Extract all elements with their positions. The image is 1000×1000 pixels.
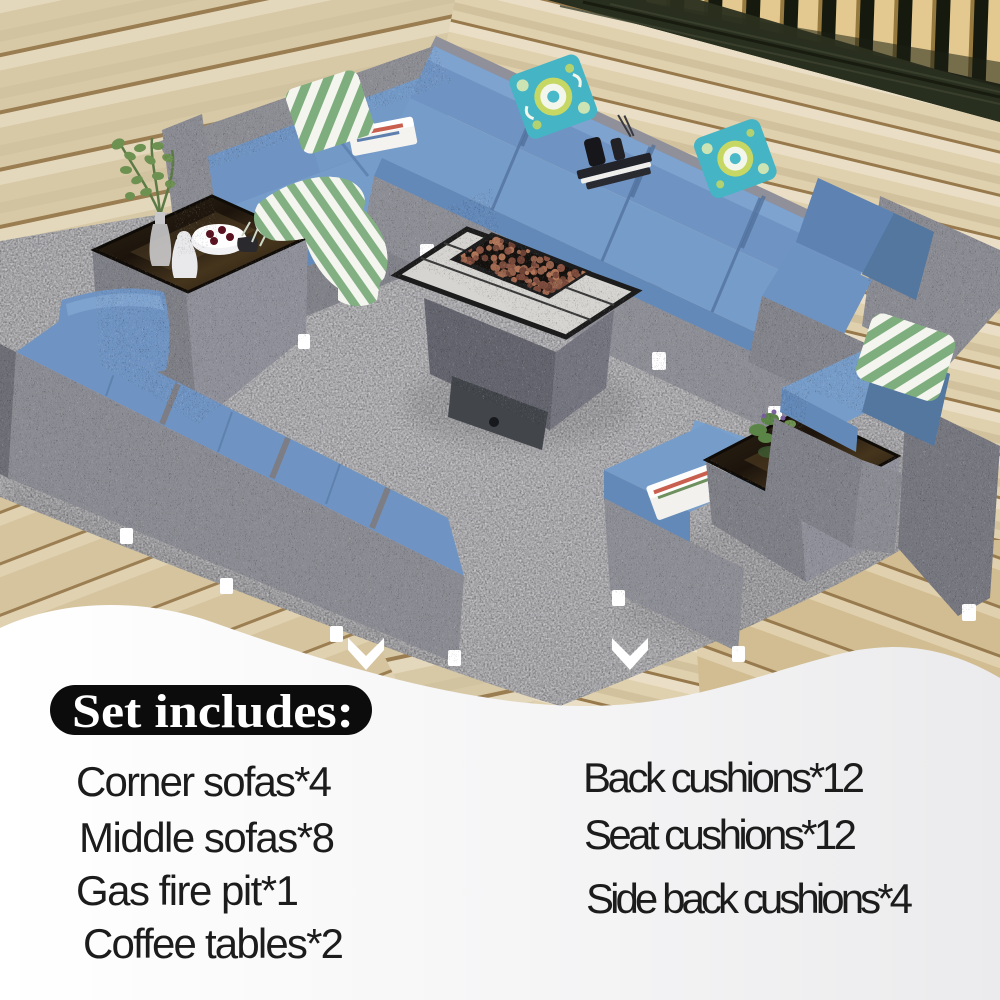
svg-text:Seat cushions*12: Seat cushions*12	[584, 811, 857, 858]
svg-text:Back cushions*12: Back cushions*12	[583, 754, 865, 801]
svg-text:Corner sofas*4: Corner sofas*4	[76, 758, 332, 805]
svg-text:Gas fire pit*1: Gas fire pit*1	[76, 867, 299, 914]
svg-text:Coffee tables*2: Coffee tables*2	[83, 920, 344, 967]
svg-text:Set includes:: Set includes:	[72, 685, 354, 738]
svg-text:Side back cushions*4: Side back cushions*4	[586, 875, 913, 922]
svg-text:Middle sofas*8: Middle sofas*8	[79, 814, 335, 861]
